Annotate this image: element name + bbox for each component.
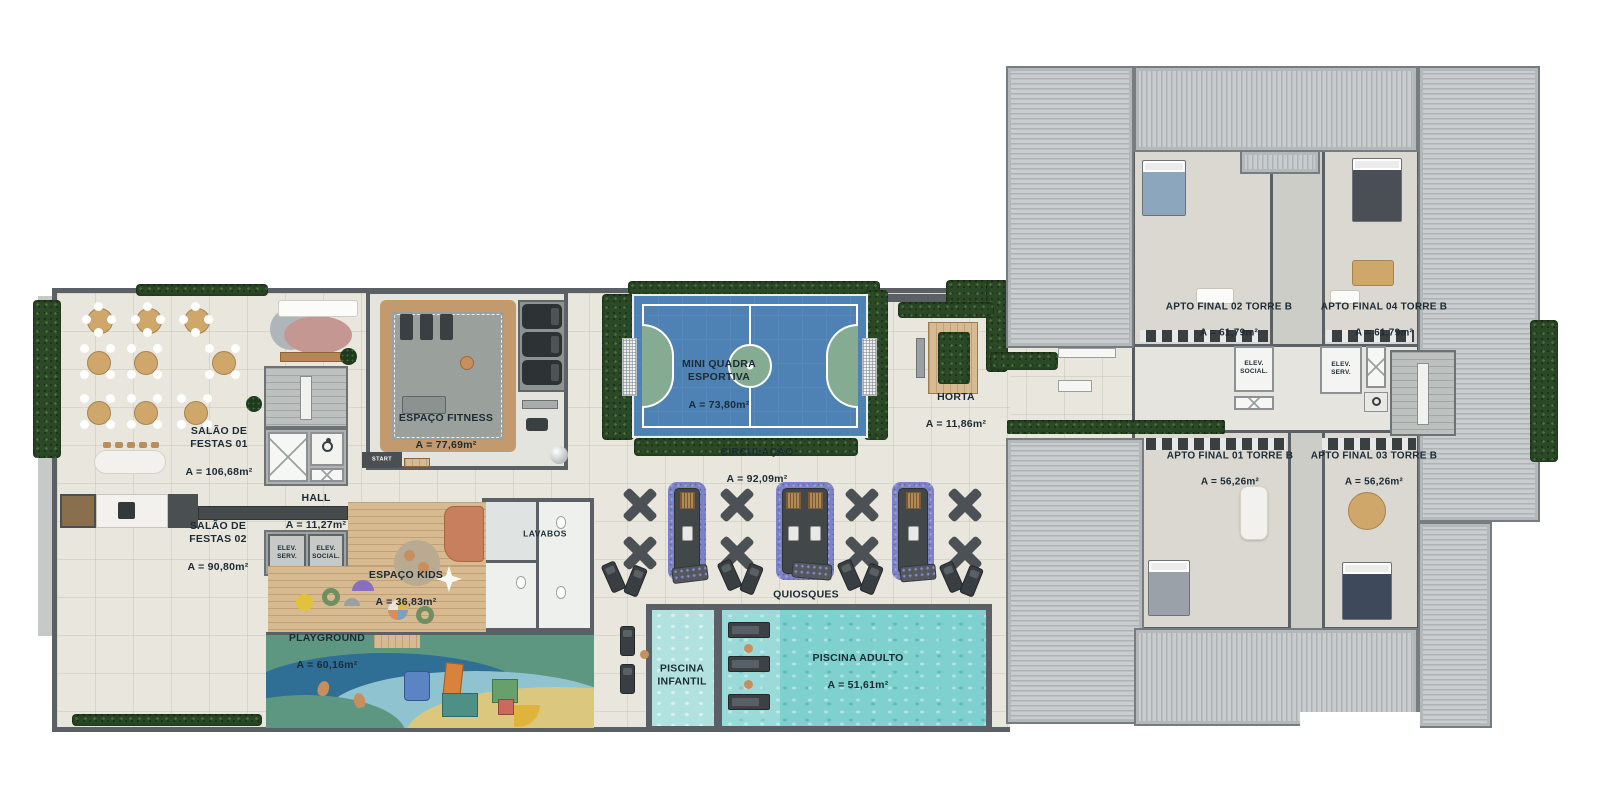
play-cube-red	[498, 699, 514, 715]
dining-table	[204, 343, 242, 381]
sun-lounger	[620, 626, 635, 656]
flower-planter	[899, 563, 936, 582]
pool-lounger	[728, 694, 770, 710]
treadmill-icon	[522, 332, 562, 357]
grill-icon	[680, 492, 695, 509]
elevator-shaft	[1234, 396, 1274, 410]
grill-icon	[906, 492, 921, 509]
dining-table	[79, 343, 117, 381]
toilet-icon	[516, 576, 526, 589]
goal-left	[622, 338, 637, 396]
label-apto-final-02: APTO FINAL 02 TORRE B A = 61,79m²	[1166, 288, 1292, 353]
area-name: PISCINA ADULTO	[812, 652, 903, 666]
area-size: A = 77,69m²	[399, 439, 493, 453]
hedge-top	[136, 284, 268, 296]
wheelchair-icon	[1372, 397, 1381, 406]
elevator-shaft	[268, 432, 308, 482]
area-size: A = 106,68m²	[185, 466, 252, 480]
gym-mat	[420, 314, 433, 340]
area-size: A = 36,83m²	[369, 596, 443, 610]
label-elev-serv-tower: ELEV. SERV.	[1331, 353, 1351, 386]
x-table	[840, 483, 884, 527]
roof-wing-lower-right	[1418, 522, 1492, 728]
area-name: ESPAÇO KIDS	[369, 569, 443, 583]
area-size: A = 56,26m²	[1167, 476, 1293, 489]
toilet-icon	[556, 586, 566, 599]
area-name: QUIOSQUES	[773, 588, 839, 602]
roof-wing-upper-left	[1006, 66, 1134, 348]
floor-plan: SALÃO DE FESTAS 01 A = 106,68m² SALÃO DE…	[0, 0, 1600, 800]
sun-lounger	[620, 664, 635, 694]
label-elev-social-tower: ELEV. SOCIAL.	[1240, 352, 1268, 385]
roof-wing-lower-left	[1006, 438, 1144, 724]
label-piscina-adulto: PISCINA ADULTO A = 51,61m²	[812, 638, 903, 706]
roof-top-center-stub	[1240, 150, 1320, 174]
label-playground: PLAYGROUND A = 60,16m²	[289, 618, 365, 686]
x-table	[618, 483, 662, 527]
dining-table	[79, 393, 117, 431]
area-size: A = 60,16m²	[289, 659, 365, 673]
toy-yellow	[296, 594, 313, 611]
dining-table	[1352, 260, 1394, 286]
hedge-court-top	[628, 281, 880, 295]
area-name: SALÃO DE FESTAS 01	[185, 425, 252, 452]
pool-divider	[714, 610, 722, 726]
treadmill-icon	[522, 360, 562, 385]
pool-side-table	[744, 644, 753, 653]
roof-top-center	[1134, 66, 1418, 152]
play-platform	[442, 693, 478, 717]
area-size: A = 51,61m²	[812, 679, 903, 693]
hedge-horta	[898, 302, 994, 318]
grill-icon	[808, 492, 823, 509]
area-name: LAVABOS	[523, 528, 567, 539]
treadmill-icon	[522, 304, 562, 329]
accessible-elevator	[310, 432, 344, 466]
label-elev-social-deck: ELEV. SOCIAL.	[312, 537, 340, 570]
label-horta: HORTA A = 11,86m²	[926, 377, 986, 445]
plant-icon	[340, 348, 357, 365]
hedge-tower-right	[1530, 320, 1558, 462]
area-size: A = 61,79m²	[1321, 327, 1447, 340]
area-name: ELEV. SOCIAL.	[312, 545, 340, 561]
bed-icon	[1142, 160, 1186, 216]
hedge-lobby	[990, 352, 1058, 370]
area-name: APTO FINAL 01 TORRE B	[1167, 450, 1293, 463]
label-salao-festas-02: SALÃO DE FESTAS 02 A = 90,80m²	[187, 506, 248, 588]
tower-stairs	[1390, 350, 1456, 436]
banquet-table	[94, 450, 166, 474]
area-name: ELEV. SERV.	[1331, 361, 1351, 377]
dining-table	[126, 343, 164, 381]
label-salao-festas-01: SALÃO DE FESTAS 01 A = 106,68m²	[185, 411, 252, 493]
area-size: A = 61,79m²	[1166, 327, 1292, 340]
area-name: CIRCULAÇÃO	[720, 446, 793, 460]
sphere-decor	[550, 446, 568, 464]
kiosk-sink	[682, 526, 693, 541]
hedge-corridor	[1007, 420, 1225, 434]
kitchen-cabinet	[60, 494, 96, 528]
area-size: A = 11,86m²	[926, 418, 986, 432]
label-apto-final-01: APTO FINAL 01 TORRE B A = 56,26m²	[1167, 437, 1293, 502]
round-table	[82, 303, 116, 337]
bed-icon	[1342, 562, 1392, 620]
horta-bench	[916, 338, 925, 378]
kiosk-sink	[908, 526, 919, 541]
label-quiosques: QUIOSQUES	[773, 575, 839, 616]
area-size: A = 11,27m²	[286, 519, 346, 533]
round-table	[131, 303, 165, 337]
bed-icon	[1352, 158, 1402, 222]
label-circulacao: CIRCULAÇÃO A = 92,09m²	[720, 432, 793, 500]
x-table	[943, 483, 987, 527]
toy-donut	[322, 588, 340, 606]
label-apto-final-04: APTO FINAL 04 TORRE B A = 61,79m²	[1321, 288, 1447, 353]
stair-rail	[1417, 363, 1429, 424]
lounge-rug-pink	[284, 316, 352, 354]
stair-rail	[300, 376, 312, 420]
wheelchair-icon-dot	[326, 438, 331, 443]
area-name: APTO FINAL 03 TORRE B	[1311, 450, 1437, 463]
plant-icon	[246, 396, 262, 412]
gym-equipment	[526, 418, 548, 431]
area-size: A = 56,26m²	[1311, 476, 1437, 489]
area-name: APTO FINAL 02 TORRE B	[1166, 301, 1292, 314]
area-name: APTO FINAL 04 TORRE B	[1321, 301, 1447, 314]
area-name: ESPAÇO FITNESS	[399, 412, 493, 426]
area-size: A = 92,09m²	[720, 473, 793, 487]
gym-mat	[400, 314, 413, 340]
label-espaco-kids: ESPAÇO KIDS A = 36,83m²	[369, 555, 443, 623]
pool-lounger	[728, 656, 770, 672]
exercise-ball	[460, 356, 474, 370]
area-size: A = 73,80m²	[682, 399, 756, 413]
roof-notch	[1300, 712, 1420, 728]
kiosk-sink	[788, 526, 799, 541]
play-slide-blue	[404, 671, 430, 701]
side-table	[640, 650, 649, 659]
accessible-area	[1364, 392, 1388, 412]
deck-stairs	[264, 366, 348, 428]
label-elev-serv-deck: ELEV. SERV.	[277, 537, 297, 570]
playground-deck-step	[374, 635, 420, 648]
pool-lounger	[728, 622, 770, 638]
lobby-wall	[1058, 348, 1116, 358]
area-name: PISCINA INFANTIL	[657, 662, 706, 689]
area-name: SALÃO DE FESTAS 02	[187, 520, 248, 547]
cooktop-icon	[118, 502, 135, 519]
label-start: START	[372, 449, 392, 470]
area-name: ELEV. SERV.	[277, 545, 297, 561]
area-size: A = 90,80m²	[187, 561, 248, 575]
gym-equipment	[522, 400, 558, 409]
dining-table	[126, 393, 164, 431]
area-name: START	[372, 456, 392, 463]
hedge-bottom	[72, 714, 262, 726]
round-table	[179, 303, 213, 337]
kiosk-sink	[810, 526, 821, 541]
lobby-wall	[1058, 380, 1092, 392]
hedge-left	[33, 300, 61, 458]
gym-mat	[440, 314, 453, 340]
goal-right	[862, 338, 877, 396]
area-name: HORTA	[926, 391, 986, 405]
area-name: PLAYGROUND	[289, 632, 365, 646]
area-name: HALL	[286, 492, 346, 506]
bed-icon	[1148, 560, 1190, 616]
label-apto-final-03: APTO FINAL 03 TORRE B A = 56,26m²	[1311, 437, 1437, 502]
pool-side-table	[744, 680, 753, 689]
label-mini-quadra: MINI QUADRA ESPORTIVA A = 73,80m²	[682, 344, 756, 426]
area-name: ELEV. SOCIAL.	[1240, 360, 1268, 376]
label-espaco-fitness: ESPAÇO FITNESS A = 77,69m²	[399, 398, 493, 466]
label-piscina-infantil: PISCINA INFANTIL	[657, 649, 706, 704]
label-lavabos: LAVABOS	[523, 517, 567, 550]
area-name: MINI QUADRA ESPORTIVA	[682, 358, 756, 385]
lounge-sofa	[278, 300, 358, 317]
lavabos-wall	[486, 560, 536, 563]
kids-sofa	[444, 506, 484, 562]
